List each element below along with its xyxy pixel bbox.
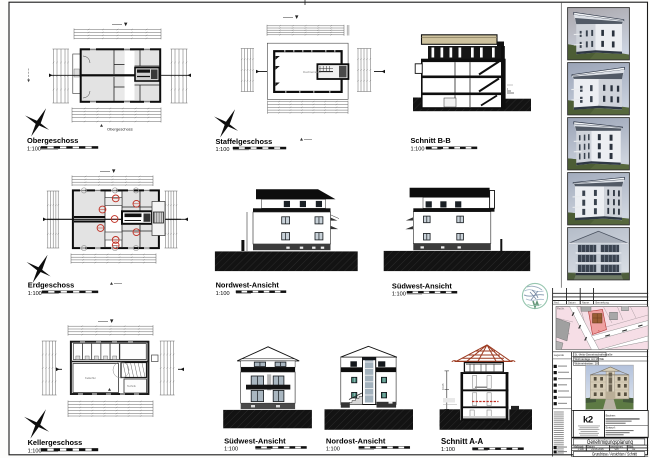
svg-text:1:100: 1:100 bbox=[441, 447, 455, 453]
svg-text:Bemerkung: Bemerkung bbox=[596, 301, 610, 305]
svg-text:Wohnanlage mit 18 WE: Wohnanlage mit 18 WE bbox=[575, 357, 604, 361]
svg-text:Obergeschoss: Obergeschoss bbox=[107, 127, 133, 132]
svg-text:Kellergeschoss: Kellergeschoss bbox=[28, 438, 83, 447]
svg-text:1:100: 1:100 bbox=[28, 448, 42, 454]
svg-text:Datum: Datum bbox=[568, 301, 576, 305]
svg-text:1:100: 1:100 bbox=[326, 447, 340, 453]
svg-text:Staffelgeschoss: Staffelgeschoss bbox=[216, 137, 273, 146]
svg-text:Legende: Legende bbox=[554, 353, 565, 357]
svg-text:Technik: Technik bbox=[127, 384, 136, 388]
svg-text:1:100: 1:100 bbox=[578, 448, 585, 451]
svg-text:Entwurf:: Entwurf: bbox=[606, 425, 616, 429]
svg-text:1:100: 1:100 bbox=[224, 447, 238, 453]
svg-text:Südwest-Ansicht: Südwest-Ansicht bbox=[224, 436, 286, 445]
svg-text:10.05: 10.05 bbox=[441, 383, 445, 390]
svg-text:Name: Name bbox=[582, 301, 589, 305]
svg-text:Grundrisse / Ansichten / Schni: Grundrisse / Ansichten / Schnitt bbox=[592, 451, 638, 456]
svg-text:1:100: 1:100 bbox=[27, 146, 41, 152]
svg-text:1:100: 1:100 bbox=[216, 147, 230, 153]
svg-text:Obergeschoss: Obergeschoss bbox=[27, 136, 78, 145]
svg-text:Dachterrasse: Dachterrasse bbox=[303, 70, 321, 74]
svg-text:St.-Veits-Gemeinschaftsstraße: St.-Veits-Gemeinschaftsstraße bbox=[575, 353, 613, 357]
svg-text:Flst.Nr.: Flst.Nr. bbox=[557, 308, 565, 311]
svg-text:Südwest-Ansicht: Südwest-Ansicht bbox=[392, 281, 452, 290]
svg-text:Bauherr:: Bauherr: bbox=[606, 413, 617, 417]
svg-text:1:100: 1:100 bbox=[411, 147, 425, 153]
svg-text:Schnitt A-A: Schnitt A-A bbox=[441, 437, 484, 446]
svg-text:Änd.: Änd. bbox=[554, 301, 560, 305]
svg-text:1:100: 1:100 bbox=[392, 291, 406, 297]
svg-text:k2: k2 bbox=[583, 415, 593, 426]
svg-text:Nordwest-Ansicht: Nordwest-Ansicht bbox=[216, 281, 280, 290]
svg-text:Erdgeschoss: Erdgeschoss bbox=[28, 281, 74, 290]
svg-text:Schnitt B-B: Schnitt B-B bbox=[411, 136, 451, 145]
svg-text:1:100: 1:100 bbox=[28, 291, 42, 297]
svg-text:Kellerflur: Kellerflur bbox=[85, 376, 96, 380]
svg-text:Nordost-Ansicht: Nordost-Ansicht bbox=[326, 436, 386, 445]
svg-text:1:100: 1:100 bbox=[216, 291, 230, 297]
